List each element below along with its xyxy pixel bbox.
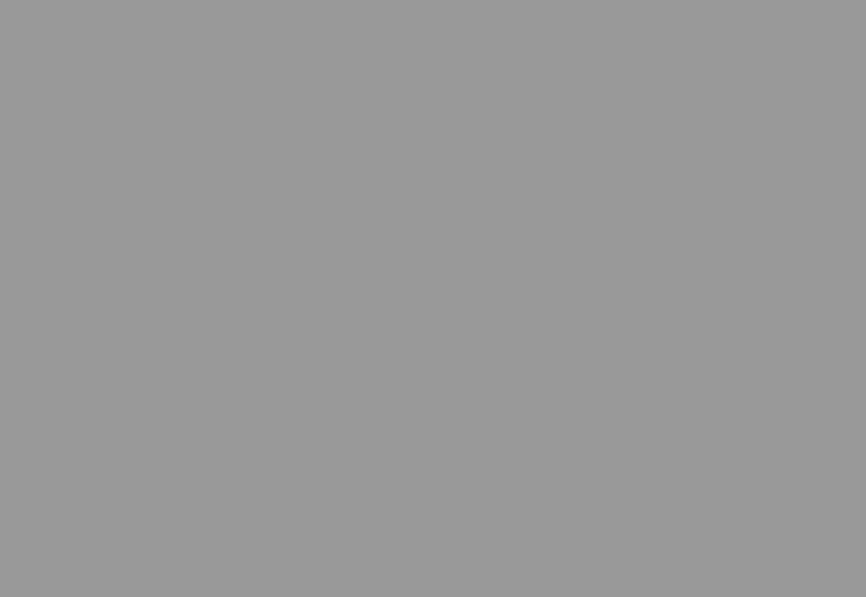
blank-screen [0, 0, 866, 597]
